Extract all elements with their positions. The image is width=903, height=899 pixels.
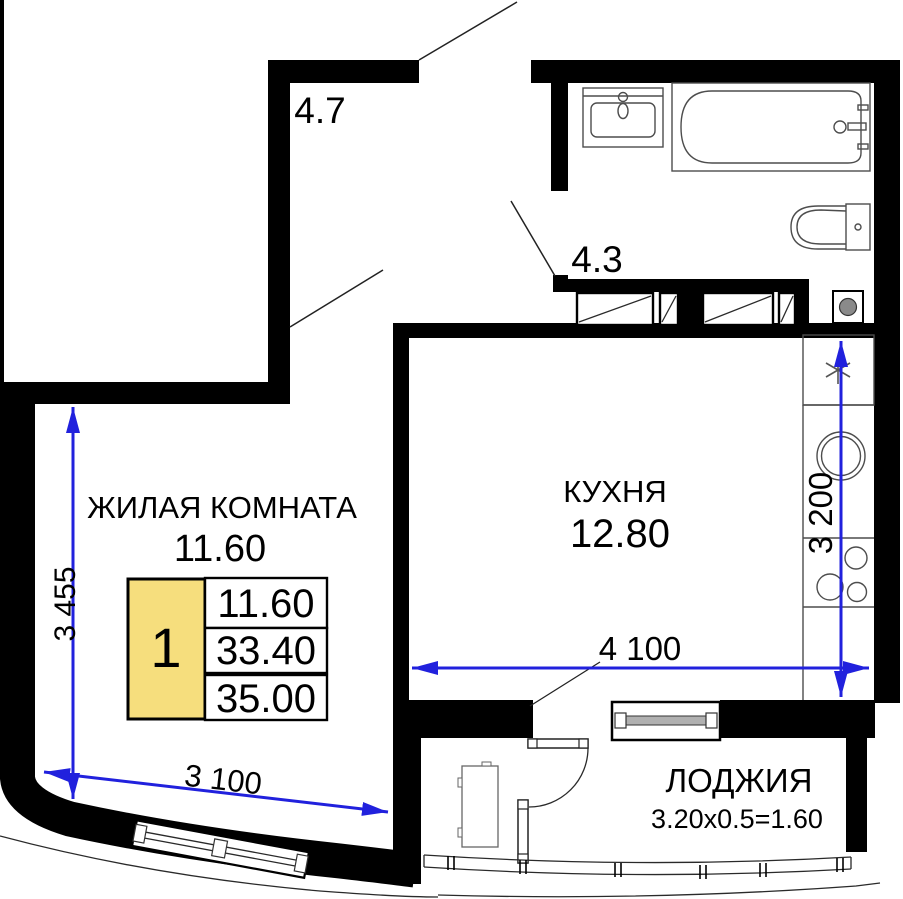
loggia-cabinet (458, 762, 498, 847)
bathroom-area-label: 4.3 (571, 239, 622, 280)
info-table-area-without-loggia: 33.40 (216, 629, 316, 673)
hallway-area-label: 4.7 (294, 90, 345, 131)
living-height-dim-label: 3 455 (49, 566, 82, 641)
kitchen-width-dim-label: 4 100 (599, 630, 682, 667)
wall-vent-separator (677, 290, 703, 325)
wall-bathroom-left (551, 83, 568, 191)
floor-plan-drawing: 1 11.60 33.40 35.00 4.7 4.3 ЖИЛАЯ КОМНАТ… (0, 0, 903, 899)
radiator-window (612, 702, 720, 740)
wall-kitchen-bottom-right (720, 700, 875, 738)
wall-top-left-segment (268, 60, 419, 83)
info-table-total-area: 35.00 (216, 677, 316, 721)
living-room-area-label: 11.60 (174, 528, 266, 570)
wall-loggia-right-column (846, 738, 867, 852)
loggia-name-label: ЛОДЖИЯ (666, 762, 813, 799)
wall-kitchen-bottom-left (405, 700, 533, 738)
wall-hall-left (268, 60, 290, 404)
floor-plan-page: 1 11.60 33.40 35.00 4.7 4.3 ЖИЛАЯ КОМНАТ… (0, 0, 903, 899)
info-table: 1 11.60 33.40 35.00 (128, 578, 327, 721)
wall-right (874, 60, 900, 703)
kitchen-name-label: КУХНЯ (563, 474, 667, 509)
wall-top-right-segment (531, 60, 900, 83)
wall-vent-right-block (795, 279, 809, 325)
loggia-area-formula-label: 3.20x0.5=1.60 (651, 804, 823, 834)
kitchen-area-label: 12.80 (570, 512, 670, 556)
living-room-name-label: ЖИЛАЯ КОМНАТА (87, 490, 357, 525)
info-table-unit-number: 1 (150, 616, 181, 679)
wall-corridor-left-line (0, 0, 4, 384)
info-table-living-area: 11.60 (217, 582, 314, 626)
wall-kitchen-left (393, 323, 409, 703)
wall-living-top (0, 382, 290, 404)
washing-machine (833, 291, 863, 323)
kitchen-height-dim-label: 3 200 (802, 472, 839, 555)
washing-machine-drum-icon (840, 299, 857, 316)
